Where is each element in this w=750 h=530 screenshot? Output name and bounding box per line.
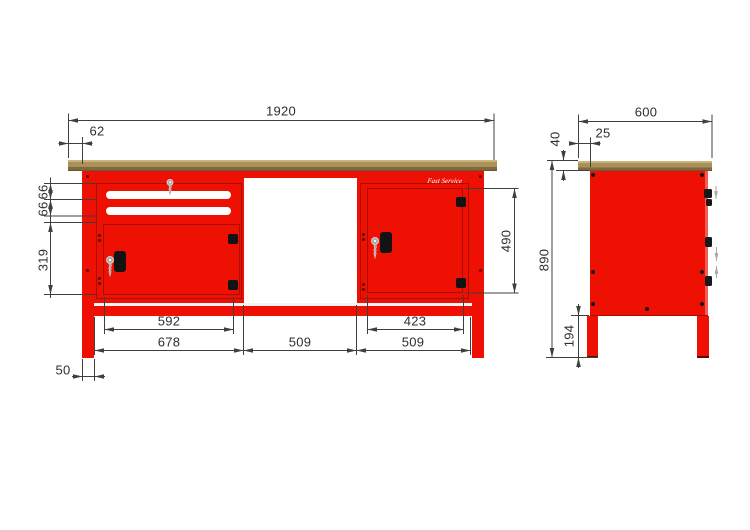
workbench-technical-drawing: Fast Service: [0, 0, 750, 530]
dim-label-total-height: 890: [537, 249, 552, 272]
dim-label-left-door-width: 592: [158, 314, 181, 329]
dim-label-right-door-width: 423: [404, 314, 427, 329]
dimension-linework: [0, 0, 750, 530]
dim-label-depth: 600: [635, 105, 658, 120]
dim-label-drawer-1-height: 66: [36, 184, 51, 199]
dim-label-left-door-height: 319: [36, 249, 51, 272]
dim-label-right-door-height: 490: [499, 229, 514, 252]
dim-label-left-cabinet-width: 678: [158, 335, 181, 350]
dim-label-worktop-overhang: 62: [89, 124, 104, 139]
dim-label-worktop-thickness: 40: [548, 131, 563, 146]
front-dimension-lines: [44, 114, 519, 382]
dim-label-total-width: 1920: [266, 104, 296, 119]
dim-label-side-overhang: 25: [595, 126, 610, 141]
dim-label-right-cabinet-width: 509: [402, 335, 425, 350]
dim-label-leg-height: 194: [562, 325, 577, 348]
dim-label-drawer-2-height: 66: [36, 201, 51, 216]
dim-label-leg-width: 50: [55, 363, 70, 378]
dim-label-center-opening-width: 509: [289, 335, 312, 350]
clipped-dimension-marks: [716, 186, 717, 278]
